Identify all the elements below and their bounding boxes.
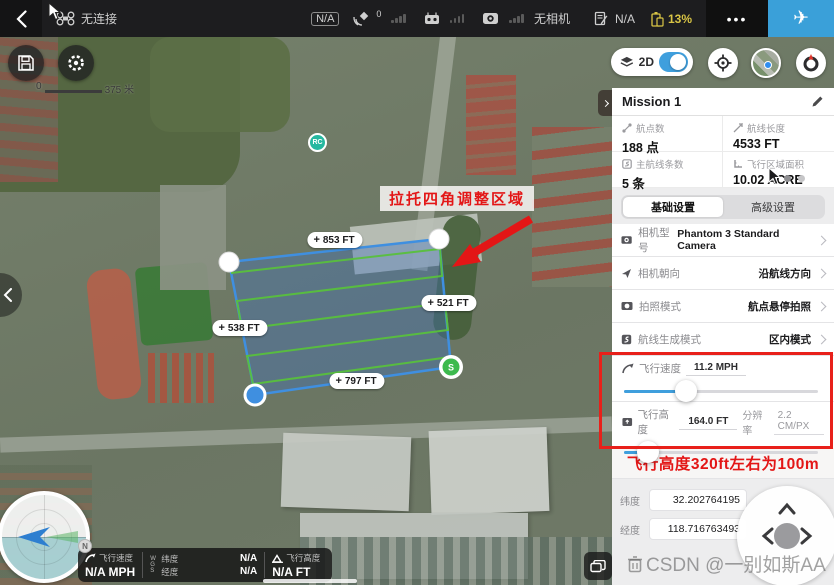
more-menu-button[interactable]: ••• — [706, 0, 768, 37]
lng-value: N/A — [240, 566, 257, 577]
stat-waypoints: 航点数 188 点 — [612, 116, 723, 152]
chevron-right-icon — [817, 235, 827, 245]
back-button[interactable] — [0, 0, 42, 37]
battery-icon — [651, 11, 664, 27]
altitude-slider-thumb[interactable] — [637, 441, 659, 463]
record-badge: N/A — [615, 12, 635, 26]
camera-icon — [482, 12, 499, 25]
altitude-slider[interactable] — [622, 441, 824, 463]
capture-mode-icon — [621, 301, 633, 311]
compass-reset-button[interactable] — [796, 48, 826, 78]
speed-icon — [85, 553, 96, 563]
tab-basic-settings[interactable]: 基础设置 — [623, 197, 723, 217]
rc-signal-bars — [450, 14, 465, 23]
gear-icon — [66, 53, 86, 73]
longitude-input[interactable] — [649, 518, 747, 540]
tutorial-arrow — [0, 37, 612, 585]
chevron-right-icon — [601, 99, 608, 106]
dpad-left-button[interactable] — [764, 529, 772, 543]
gps-signal-bars — [391, 14, 406, 23]
drone-icon — [56, 11, 75, 26]
camera-signal-bars — [509, 14, 524, 23]
chevron-left-icon — [16, 10, 27, 28]
chevron-left-icon — [3, 288, 13, 302]
route-length-icon — [733, 123, 743, 133]
battery-status: 13% — [651, 11, 692, 27]
nudge-dpad[interactable] — [737, 486, 834, 585]
stat-main-lines: 主航线条数 5 条 — [612, 152, 723, 188]
map-layer-preview-button[interactable] — [751, 48, 781, 78]
compass-north-badge: N — [78, 539, 92, 553]
gps-count: 0 — [376, 9, 381, 19]
view-2d-toggle[interactable]: 2D — [611, 48, 693, 76]
camera-status-label: 无相机 — [534, 10, 570, 27]
map-settings-button[interactable] — [58, 45, 94, 81]
stat-route-length: 航线长度 4533 FT — [723, 116, 834, 152]
flight-altitude-row: 飞行高度 164.0 FT 分辨率 2.2 CM/PX — [612, 402, 834, 448]
record-status: N/A — [594, 11, 635, 26]
altitude-icon — [272, 553, 283, 563]
edit-pencil-icon[interactable] — [811, 95, 824, 108]
status-top-bar: 无连接 N/A 0 无相机 N/A 13% ••• ✈ — [0, 0, 834, 37]
flight-mode-badge: N/A — [311, 12, 339, 26]
row-camera-heading[interactable]: 相机朝向 沿航线方向 — [612, 257, 834, 290]
rc-status — [424, 12, 469, 25]
waypoints-icon — [622, 123, 632, 133]
attitude-compass-widget[interactable] — [0, 491, 90, 583]
dpad-up-button[interactable] — [780, 505, 794, 513]
gps-status: 0 — [353, 11, 410, 26]
camera-icon — [621, 235, 632, 245]
telemetry-bar: 飞行速度 N/A MPH WGS 纬度N/A 经度N/A 飞行高度 N/A FT — [78, 548, 332, 582]
telemetry-speed: 飞行速度 N/A MPH — [78, 548, 142, 582]
speed-icon — [622, 363, 634, 374]
tab-advanced-settings[interactable]: 高级设置 — [723, 197, 823, 217]
map-type-button[interactable] — [584, 552, 612, 580]
speed-value-field[interactable]: 11.2 MPH — [686, 361, 746, 376]
camera-status: 无相机 — [482, 10, 570, 27]
takeoff-button[interactable]: ✈ — [768, 0, 834, 37]
area-icon — [733, 159, 743, 169]
stat-area: 飞行区域面积 10.02 ACRE — [723, 152, 834, 188]
connection-status: 无连接 — [81, 10, 117, 27]
view-2d-label: 2D — [639, 55, 654, 69]
layers-icon — [620, 55, 634, 69]
row-capture-mode[interactable]: 拍照模式 航点悬停拍照 — [612, 290, 834, 323]
lat-value: N/A — [240, 553, 257, 564]
satellite-icon — [353, 11, 370, 26]
heading-arrow-icon — [621, 268, 632, 279]
dpad-center-button[interactable] — [774, 523, 800, 549]
altitude-icon — [622, 417, 633, 427]
crosshair-icon — [714, 54, 732, 72]
chevron-right-icon — [817, 301, 827, 311]
remote-controller-icon — [424, 12, 440, 25]
route-lines-icon — [622, 159, 632, 169]
speed-value: N/A MPH — [85, 565, 135, 579]
telemetry-altitude: 飞行高度 N/A FT — [265, 548, 327, 582]
layers-stack-icon — [590, 560, 606, 573]
latitude-input[interactable] — [649, 489, 747, 511]
chevron-right-icon — [817, 268, 827, 278]
settings-tabs: 基础设置 高级设置 — [621, 195, 825, 219]
2d-switch[interactable] — [659, 52, 688, 72]
save-icon — [17, 54, 35, 72]
home-indicator — [263, 579, 357, 583]
speed-slider[interactable] — [622, 380, 824, 402]
altitude-value-field[interactable]: 164.0 FT — [679, 415, 737, 430]
locate-me-button[interactable] — [708, 48, 738, 78]
wgs-label: WGS — [150, 556, 158, 575]
aircraft-heading-icon — [10, 521, 80, 555]
resolution-value-field[interactable]: 2.2 CM/PX — [774, 409, 824, 435]
airplane-icon: ✈ — [793, 7, 809, 30]
compass-icon — [801, 53, 821, 73]
panel-collapse-tab[interactable] — [598, 90, 612, 116]
speed-slider-thumb[interactable] — [675, 380, 697, 402]
flight-speed-row: 飞行速度 11.2 MPH — [612, 356, 834, 402]
altitude-value: N/A FT — [272, 565, 320, 579]
location-dot — [764, 61, 772, 69]
save-mission-button[interactable] — [8, 45, 44, 81]
battery-percent: 13% — [668, 12, 692, 26]
stats-pagination-dots — [784, 175, 805, 182]
dpad-right-button[interactable] — [802, 529, 810, 543]
mission-title: Mission 1 — [622, 94, 811, 109]
telemetry-gps: WGS 纬度N/A 经度N/A — [143, 548, 264, 582]
row-camera-model[interactable]: 相机型号 Phantom 3 Standard Camera — [612, 224, 834, 257]
clipboard-icon — [594, 11, 609, 26]
route-mode-icon — [621, 334, 632, 345]
chevron-right-icon — [817, 334, 827, 344]
mission-header: Mission 1 — [612, 88, 834, 116]
row-route-mode[interactable]: 航线生成模式 区内模式 — [612, 323, 834, 356]
